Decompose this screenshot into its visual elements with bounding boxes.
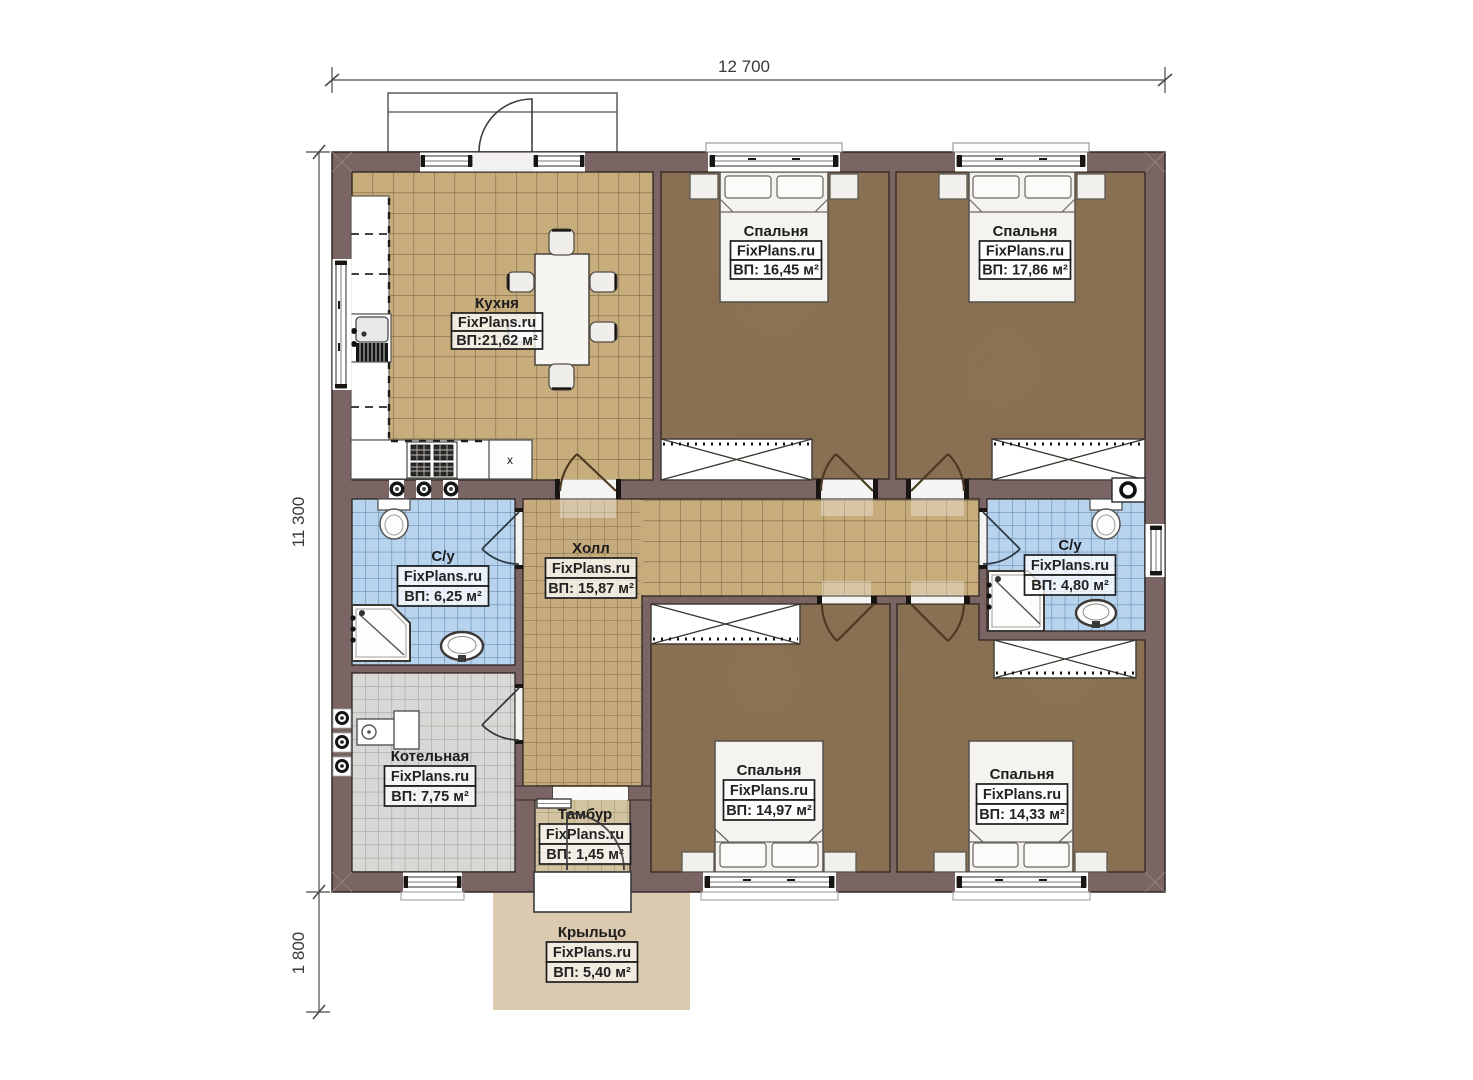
- svg-text:Спальня: Спальня: [744, 223, 809, 240]
- svg-text:ВП: 7,75 м²: ВП: 7,75 м²: [391, 789, 469, 805]
- svg-text:Спальня: Спальня: [737, 762, 802, 779]
- svg-text:ВП: 14,33 м²: ВП: 14,33 м²: [979, 807, 1065, 823]
- svg-text:С/у: С/у: [431, 548, 455, 565]
- svg-text:FixPlans.ru: FixPlans.ru: [983, 787, 1061, 803]
- svg-text:Холл: Холл: [572, 540, 610, 557]
- svg-text:FixPlans.ru: FixPlans.ru: [737, 244, 815, 260]
- svg-text:Крыльцо: Крыльцо: [558, 924, 626, 941]
- svg-text:FixPlans.ru: FixPlans.ru: [553, 945, 631, 961]
- svg-text:ВП: 5,40 м²: ВП: 5,40 м²: [553, 965, 631, 981]
- svg-text:FixPlans.ru: FixPlans.ru: [458, 315, 536, 331]
- svg-text:FixPlans.ru: FixPlans.ru: [1031, 558, 1109, 574]
- svg-text:FixPlans.ru: FixPlans.ru: [552, 561, 630, 577]
- svg-text:Кухня: Кухня: [475, 295, 519, 312]
- svg-text:ВП: 4,80 м²: ВП: 4,80 м²: [1031, 578, 1109, 594]
- svg-text:ВП: 16,45 м²: ВП: 16,45 м²: [733, 263, 819, 279]
- svg-text:ВП:21,62 м²: ВП:21,62 м²: [456, 333, 538, 349]
- svg-text:FixPlans.ru: FixPlans.ru: [986, 244, 1064, 260]
- svg-text:Спальня: Спальня: [990, 766, 1055, 783]
- svg-text:Спальня: Спальня: [993, 223, 1058, 240]
- svg-text:12 700: 12 700: [718, 57, 770, 76]
- svg-text:ВП: 1,45 м²: ВП: 1,45 м²: [546, 847, 624, 863]
- svg-text:ВП: 17,86 м²: ВП: 17,86 м²: [982, 263, 1068, 279]
- svg-text:1 800: 1 800: [289, 932, 308, 975]
- svg-text:ВП: 14,97 м²: ВП: 14,97 м²: [726, 803, 812, 819]
- svg-text:Тамбур: Тамбур: [558, 806, 612, 823]
- svg-text:ВП: 6,25 м²: ВП: 6,25 м²: [404, 589, 482, 605]
- svg-text:x: x: [507, 453, 513, 467]
- svg-text:FixPlans.ru: FixPlans.ru: [404, 569, 482, 585]
- svg-text:Котельная: Котельная: [391, 748, 470, 765]
- svg-text:С/у: С/у: [1058, 537, 1082, 554]
- svg-text:FixPlans.ru: FixPlans.ru: [391, 769, 469, 785]
- svg-text:ВП: 15,87 м²: ВП: 15,87 м²: [548, 581, 634, 597]
- svg-text:FixPlans.ru: FixPlans.ru: [730, 783, 808, 799]
- svg-text:11 300: 11 300: [289, 497, 308, 548]
